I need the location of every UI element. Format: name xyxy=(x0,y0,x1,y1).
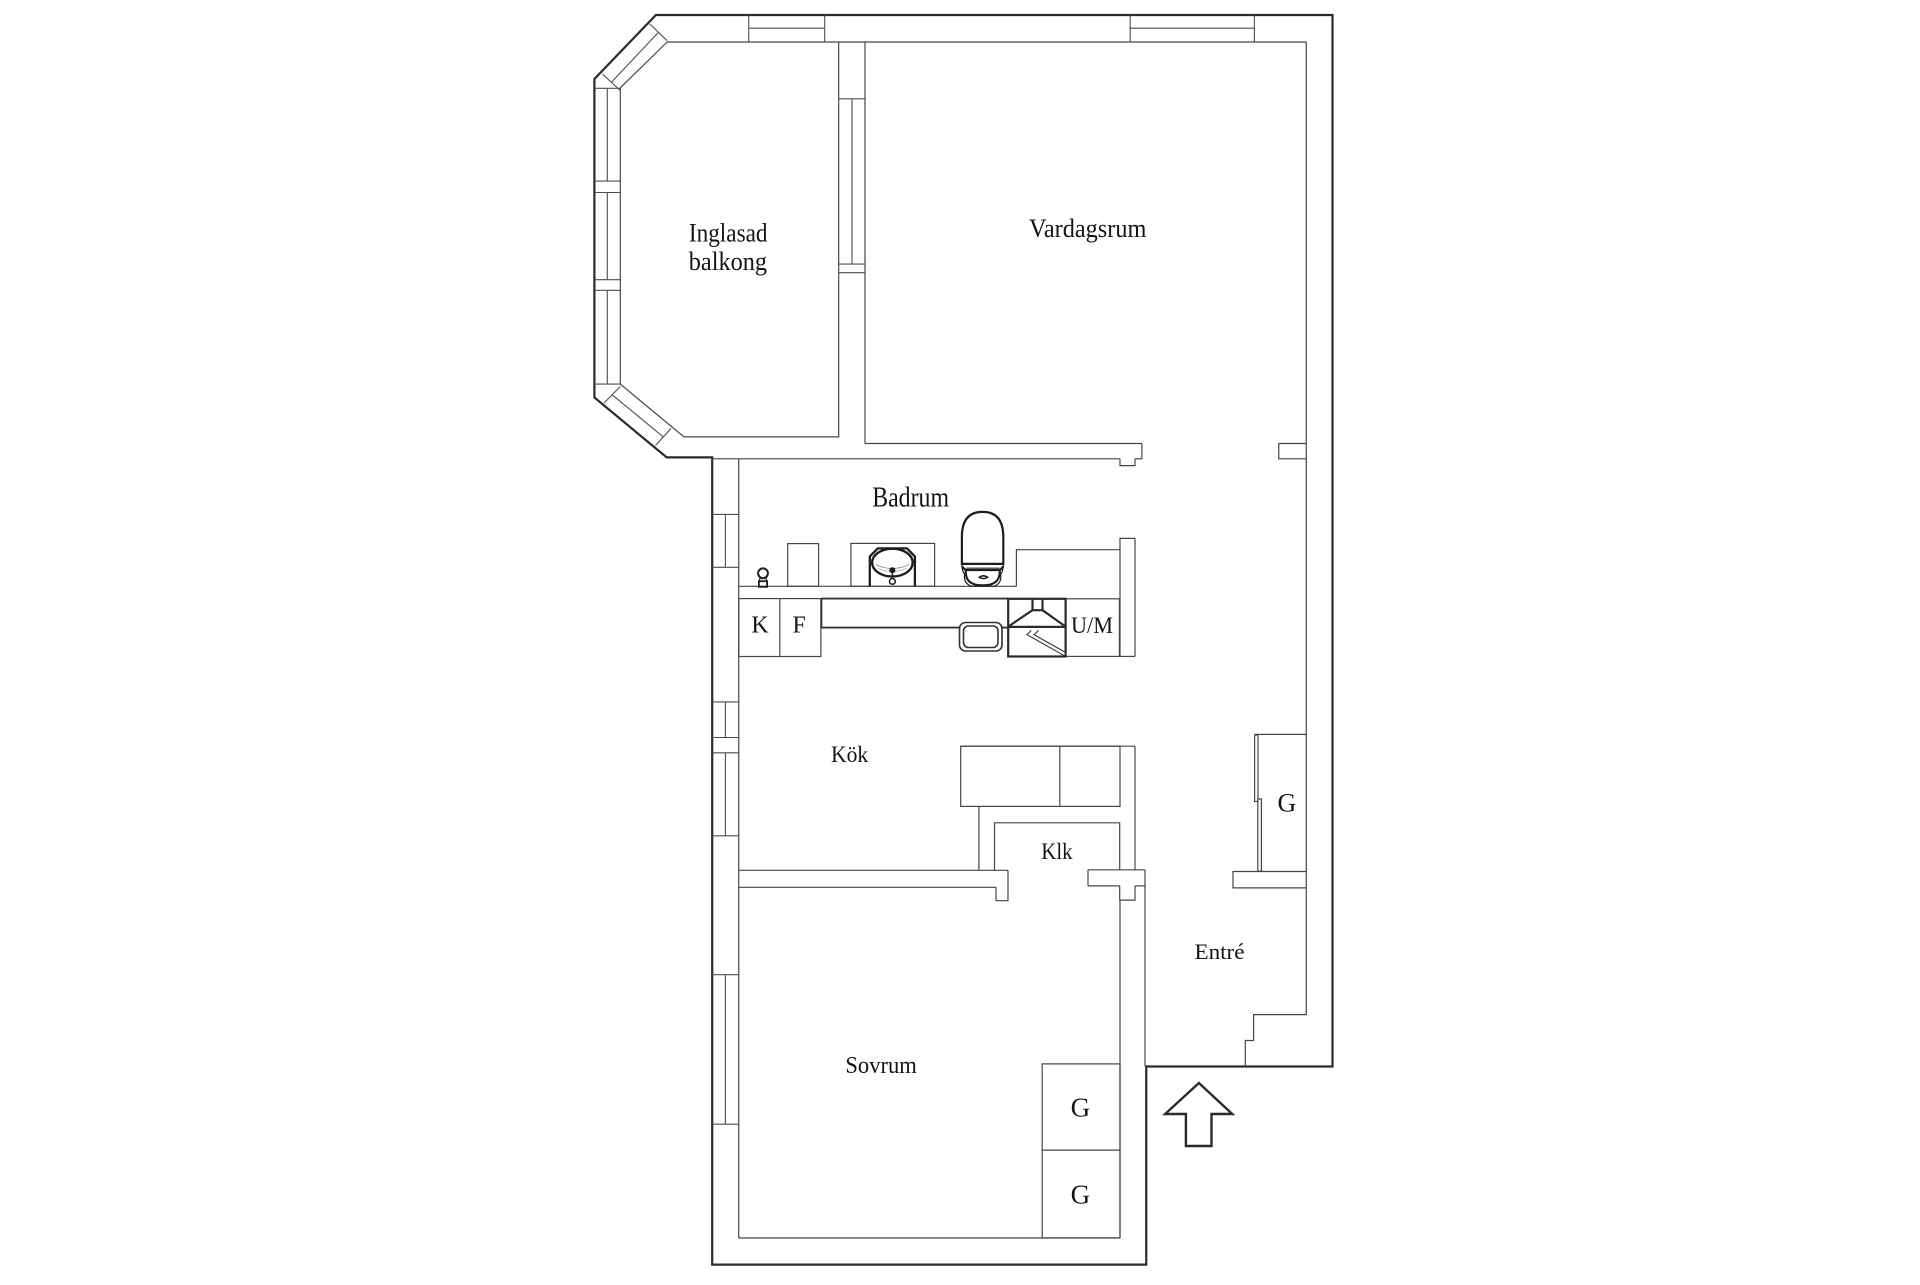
svg-text:G: G xyxy=(1278,789,1297,818)
svg-text:F: F xyxy=(792,613,805,639)
svg-text:Vardagsrum: Vardagsrum xyxy=(1029,214,1146,243)
svg-text:Klk: Klk xyxy=(1041,839,1073,864)
svg-text:U/M: U/M xyxy=(1071,613,1113,638)
svg-text:Badrum: Badrum xyxy=(872,482,949,513)
svg-text:G: G xyxy=(1071,1092,1091,1122)
svg-text:K: K xyxy=(751,613,769,639)
svg-text:Entré: Entré xyxy=(1195,940,1245,964)
svg-text:Sovrum: Sovrum xyxy=(845,1052,917,1079)
svg-text:balkong: balkong xyxy=(689,247,767,276)
svg-text:Inglasad: Inglasad xyxy=(689,219,768,248)
svg-text:Kök: Kök xyxy=(831,742,869,767)
svg-text:G: G xyxy=(1071,1179,1091,1209)
